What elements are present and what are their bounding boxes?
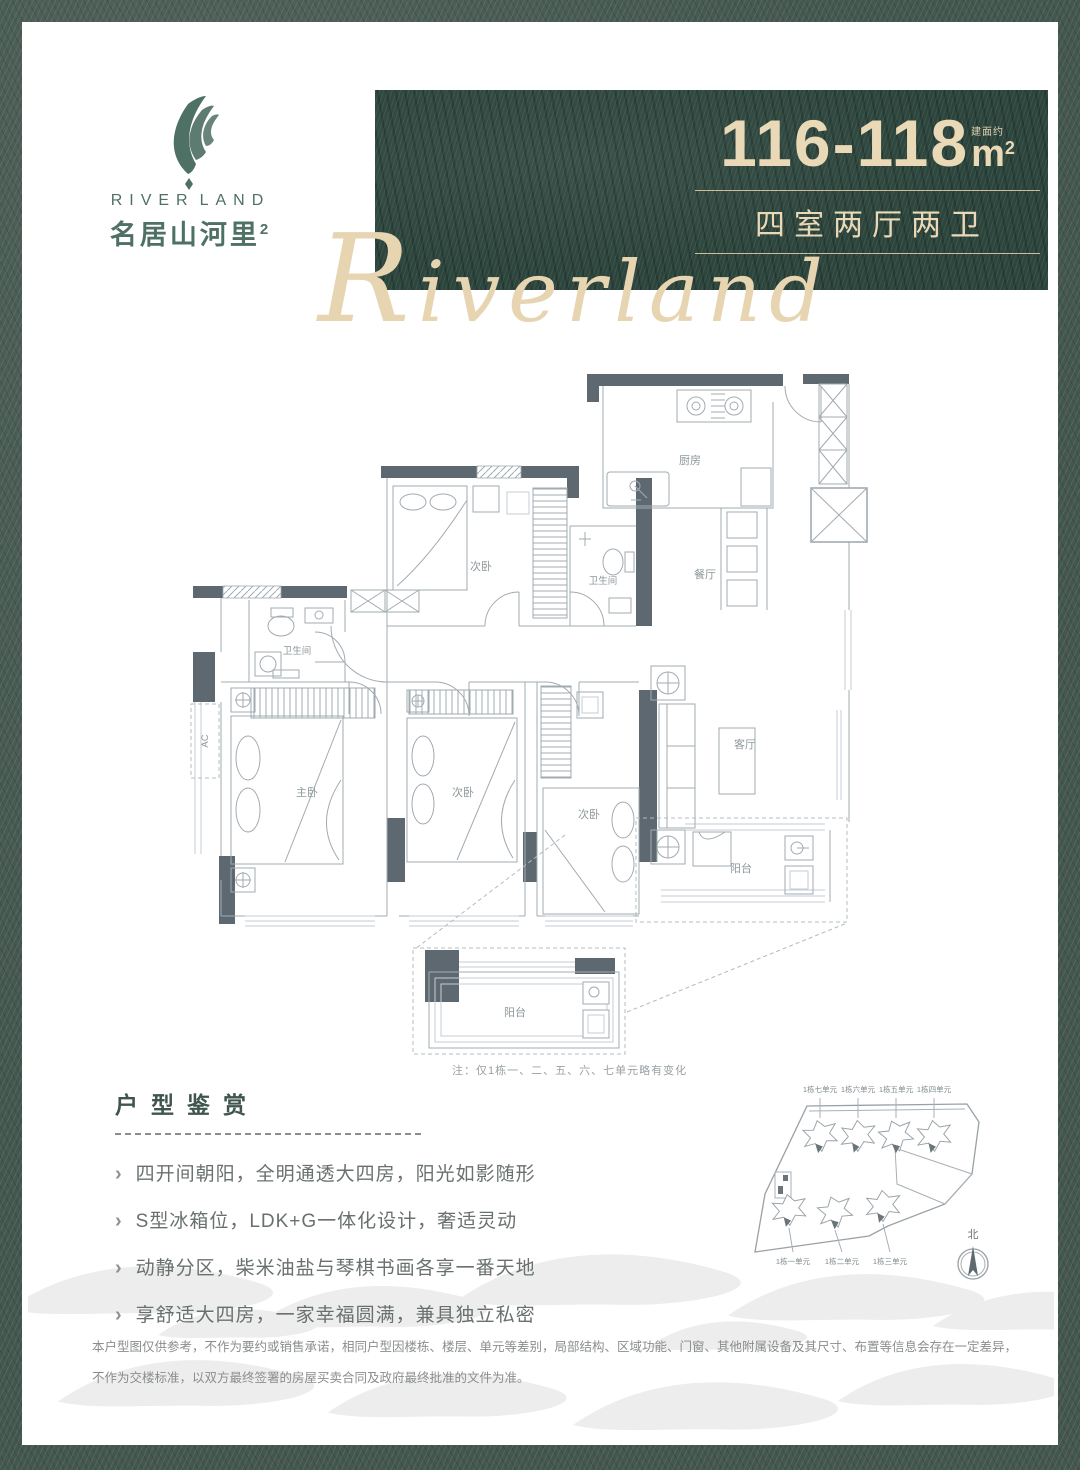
label-unit3: 1栋三单元 bbox=[873, 1256, 908, 1266]
bed-master bbox=[231, 688, 343, 892]
bedroom4-label: 次卧 bbox=[578, 807, 600, 821]
kitchen-fixtures bbox=[607, 390, 771, 506]
area-range: 116-118建面约m2 bbox=[695, 110, 1040, 176]
room-labels: 厨房 餐厅 卫生间 次卧 卫生间 主卧 次卧 次卧 客厅 阳台 bbox=[283, 454, 756, 875]
balcony-fixtures bbox=[785, 836, 813, 894]
living-furniture bbox=[651, 666, 755, 866]
site-boundary-inner bbox=[809, 1109, 965, 1111]
bath1-fixtures bbox=[255, 608, 333, 678]
label-unit4: 1栋四单元 bbox=[917, 1084, 952, 1094]
riverland-flame-icon bbox=[158, 96, 222, 194]
kitchen-label: 厨房 bbox=[679, 454, 701, 467]
feature-item: ›四开间朝阳，全明通透大四房，阳光如影随形 bbox=[115, 1159, 735, 1186]
brand-name-cn: 名居山河里2 bbox=[78, 213, 303, 252]
features-title: 户型鉴赏 bbox=[115, 1086, 735, 1120]
building-unit7 bbox=[803, 1121, 837, 1153]
site-structure bbox=[775, 1172, 791, 1198]
bath2-label: 卫生间 bbox=[589, 575, 618, 587]
disclaimer: 本户型图仅供参考，不作为要约或销售承诺，相同户型因楼栋、楼层、单元等差别，局部结… bbox=[92, 1332, 1017, 1394]
detail-balcony-label: 阳台 bbox=[504, 1005, 526, 1019]
site-wedge bbox=[895, 1148, 972, 1204]
balcony-dashed bbox=[415, 818, 847, 1012]
bed-secondary-mid bbox=[407, 690, 517, 862]
bed-secondary-top bbox=[393, 486, 529, 590]
building-unit1 bbox=[771, 1194, 807, 1229]
wardrobes bbox=[251, 488, 571, 778]
chevron-icon: › bbox=[115, 1257, 123, 1279]
site-labels: 1栋七单元 1栋六单元 1栋五单元 1栋四单元 1栋一单元 1栋二单元 1栋三单… bbox=[776, 1084, 952, 1266]
brand-name-cn-sup: 2 bbox=[260, 221, 271, 238]
divider-bottom bbox=[695, 253, 1040, 254]
dining-fixtures bbox=[727, 512, 757, 606]
label-unit5: 1栋五单元 bbox=[879, 1084, 914, 1094]
feature-item: ›动静分区，柴米油盐与琴棋书画各享一番天地 bbox=[115, 1253, 735, 1280]
feature-item: ›享舒适大四房，一家幸福圆满，兼具独立私密 bbox=[115, 1300, 735, 1327]
chevron-icon: › bbox=[115, 1163, 123, 1185]
area-unit-sup: 2 bbox=[1005, 138, 1015, 158]
north-needle bbox=[968, 1246, 978, 1276]
plan-note: 注：仅1栋一、二、五、六、七单元略有变化 bbox=[452, 1062, 687, 1078]
building-unit3 bbox=[864, 1189, 902, 1225]
bedroom3-label: 次卧 bbox=[452, 785, 474, 799]
bedroom2-label: 次卧 bbox=[470, 559, 492, 573]
area-banner: 116-118建面约m2 四室两厅两卫 bbox=[375, 90, 1048, 290]
label-unit2: 1栋二单元 bbox=[825, 1256, 860, 1266]
area-block: 116-118建面约m2 四室两厅两卫 bbox=[695, 90, 1040, 254]
balcony-label: 阳台 bbox=[730, 861, 752, 875]
balcony-detail: 阳台 bbox=[413, 948, 625, 1054]
chevron-icon: › bbox=[115, 1210, 123, 1232]
label-unit1: 1栋一单元 bbox=[776, 1256, 811, 1266]
label-unit7: 1栋七单元 bbox=[803, 1084, 838, 1094]
floorplan: AC 阳台 厨房 餐厅 卫生间 次卧 卫生间 主卧 次卧 次卧 客厅 阳台 bbox=[185, 360, 875, 1060]
siteplan: 1栋七单元 1栋六单元 1栋五单元 1栋四单元 1栋一单元 1栋二单元 1栋三单… bbox=[745, 1078, 1015, 1303]
chevron-icon: › bbox=[115, 1304, 123, 1326]
north-label: 北 bbox=[968, 1228, 979, 1241]
leader-lines bbox=[789, 1098, 934, 1252]
features-list: ›四开间朝阳，全明通透大四房，阳光如影随形 ›S型冰箱位，LDK+G一体化设计，… bbox=[115, 1159, 735, 1327]
north-compass: 北 bbox=[958, 1228, 988, 1279]
layout-label: 四室两厅两卫 bbox=[695, 191, 1040, 253]
brand-name-en: RIVER LAND bbox=[78, 192, 303, 210]
building-unit4 bbox=[915, 1119, 952, 1154]
area-prefix: 建面约 bbox=[971, 128, 1015, 138]
building-unit5 bbox=[877, 1119, 914, 1155]
features-section: 户型鉴赏 ›四开间朝阳，全明通透大四房，阳光如影随形 ›S型冰箱位，LDK+G一… bbox=[115, 1086, 735, 1347]
area-unit: m bbox=[971, 133, 1005, 175]
brand-name-en-left: RIVER bbox=[111, 192, 195, 209]
feature-item: ›S型冰箱位，LDK+G一体化设计，奢适灵动 bbox=[115, 1206, 735, 1233]
building-unit6 bbox=[839, 1119, 877, 1156]
brand-name-en-right: LAND bbox=[200, 192, 271, 209]
door-arcs bbox=[315, 386, 821, 716]
window-hatch bbox=[223, 586, 281, 598]
label-unit6: 1栋六单元 bbox=[841, 1084, 876, 1094]
dining-label: 餐厅 bbox=[694, 567, 716, 581]
ac-label: AC bbox=[200, 734, 211, 747]
living-label: 客厅 bbox=[734, 737, 756, 751]
bath2-fixtures bbox=[579, 532, 634, 613]
master-label: 主卧 bbox=[296, 786, 318, 799]
building-unit2 bbox=[817, 1195, 854, 1230]
bath1-label: 卫生间 bbox=[283, 645, 312, 657]
window-hatch bbox=[477, 466, 521, 478]
features-divider bbox=[115, 1133, 421, 1135]
area-number: 116-118 bbox=[720, 106, 969, 180]
